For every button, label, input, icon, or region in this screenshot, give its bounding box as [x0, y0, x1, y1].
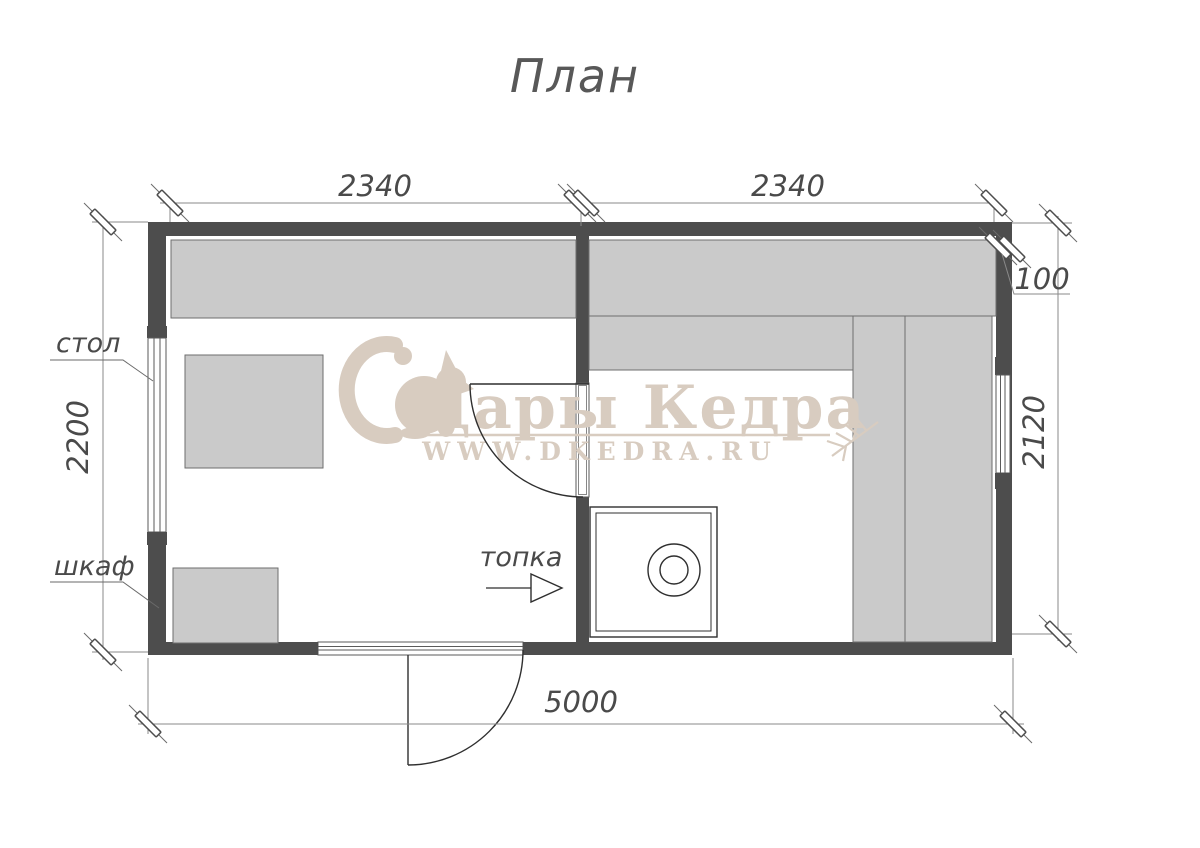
cabinet — [173, 568, 278, 643]
dimension-value-right: 2120 — [1017, 395, 1051, 469]
bench-vertical-outer — [905, 316, 992, 642]
floor-plan-drawing: План — [0, 0, 1200, 848]
dimension-value-left: 2200 — [61, 400, 95, 474]
window-jamb — [995, 473, 1011, 489]
door-jamb — [523, 642, 537, 655]
window-glass-area — [996, 375, 1010, 473]
window-jamb — [147, 532, 167, 545]
dimension-value-bottom: 5000 — [544, 685, 618, 719]
window-jamb — [147, 326, 167, 338]
firebox-label-text: топка — [480, 542, 563, 573]
bench-mid-right-room — [589, 316, 853, 370]
window-glass-area — [148, 338, 166, 532]
bench-top-left-room — [171, 240, 576, 318]
floor-plan-page: План — [0, 0, 1200, 848]
cabinet-label-text: шкаф — [54, 551, 135, 582]
door-jamb — [308, 642, 318, 655]
dimension-value-top-right: 2340 — [751, 169, 825, 203]
entry-door-opening — [308, 642, 537, 655]
squirrel-tail-tip — [394, 347, 412, 365]
door-threshold — [318, 642, 523, 655]
dimension-value-top-left: 2340 — [338, 169, 412, 203]
table-label-text: стол — [56, 328, 120, 359]
stove — [590, 507, 717, 637]
stove-outer — [590, 507, 717, 637]
table — [185, 355, 323, 468]
window-jamb — [995, 357, 1011, 375]
wall-bottom — [148, 642, 1012, 655]
dimension-value-wall: 100 — [1014, 262, 1069, 296]
watermark-url: WWW.DKEDRA.RU — [421, 437, 778, 466]
bench-vertical-inner — [853, 316, 905, 642]
window-right — [995, 357, 1011, 489]
bench-top-right-room — [589, 240, 996, 316]
window-left — [147, 326, 167, 545]
wall-top — [148, 222, 1012, 236]
page-title: План — [510, 49, 640, 103]
